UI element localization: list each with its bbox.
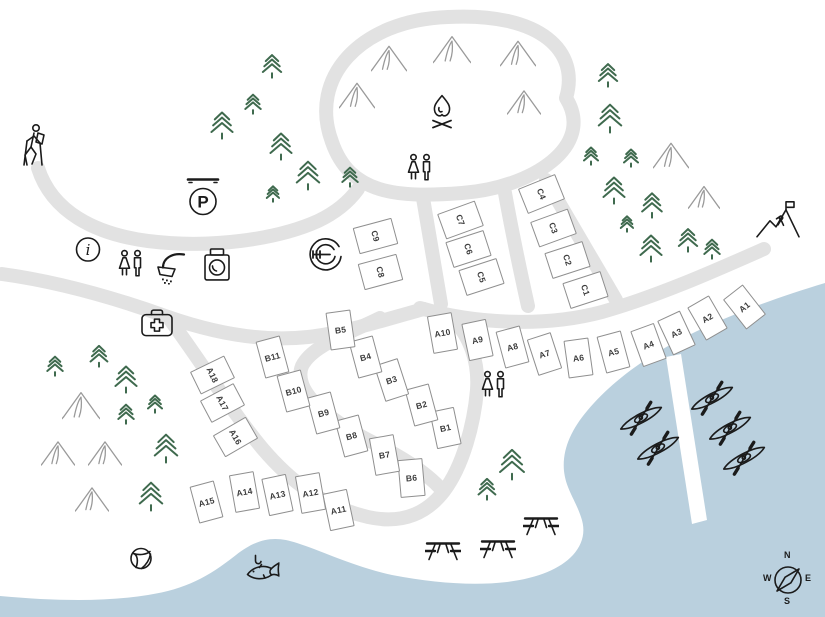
tree-icon bbox=[597, 102, 623, 139]
tree-icon bbox=[341, 166, 359, 193]
site-label: A13 bbox=[268, 488, 286, 501]
climbing-icon[interactable] bbox=[755, 199, 801, 245]
tent-icon bbox=[500, 38, 536, 71]
site-label: B2 bbox=[414, 399, 427, 412]
site-label: C9 bbox=[369, 229, 382, 242]
tent-icon bbox=[371, 43, 407, 76]
site-label: C3 bbox=[546, 221, 559, 235]
restrooms-icon[interactable] bbox=[116, 249, 146, 286]
site-label: A16 bbox=[227, 427, 244, 446]
tree-icon bbox=[678, 227, 699, 258]
site-label: C7 bbox=[453, 213, 466, 227]
compass-west: W bbox=[763, 573, 772, 583]
site-label: A9 bbox=[470, 334, 483, 346]
hiking-trailhead-icon[interactable] bbox=[17, 122, 53, 172]
site-label: B1 bbox=[438, 422, 451, 434]
site-label: B10 bbox=[284, 384, 302, 398]
svg-text:i: i bbox=[86, 241, 91, 259]
compass-east: E bbox=[805, 573, 811, 583]
compass-south: S bbox=[784, 596, 790, 606]
site-label: C2 bbox=[561, 253, 574, 267]
tree-icon bbox=[498, 447, 525, 486]
site-label: A4 bbox=[641, 338, 655, 351]
site-label: A1 bbox=[736, 300, 751, 315]
tree-icon bbox=[114, 364, 138, 399]
tree-icon bbox=[244, 93, 262, 120]
site-label: B3 bbox=[384, 374, 398, 387]
site-a6[interactable]: A6 bbox=[563, 337, 593, 378]
site-label: B8 bbox=[344, 430, 357, 443]
tree-icon bbox=[583, 146, 599, 171]
tree-icon bbox=[703, 238, 721, 265]
site-label: A8 bbox=[505, 341, 518, 354]
tree-icon bbox=[641, 191, 663, 224]
tree-icon bbox=[602, 175, 626, 210]
ball-play-icon[interactable] bbox=[130, 547, 153, 575]
site-label: A17 bbox=[214, 393, 230, 412]
tent-icon bbox=[507, 88, 541, 120]
tree-icon bbox=[269, 131, 293, 166]
tree-icon bbox=[46, 355, 64, 382]
site-label: C8 bbox=[374, 265, 387, 278]
tree-icon bbox=[117, 403, 135, 430]
site-label: A2 bbox=[700, 311, 715, 325]
information-icon[interactable]: i bbox=[75, 236, 102, 268]
site-label: A3 bbox=[669, 326, 683, 340]
fishing-icon[interactable] bbox=[243, 553, 280, 592]
campfire-icon[interactable] bbox=[426, 94, 458, 135]
food-icon[interactable] bbox=[305, 236, 343, 279]
first-aid-icon[interactable] bbox=[140, 308, 175, 343]
restrooms-icon[interactable] bbox=[405, 153, 435, 190]
site-b6[interactable]: B6 bbox=[397, 458, 425, 498]
site-label: A14 bbox=[235, 486, 253, 499]
site-label: A6 bbox=[572, 352, 585, 363]
site-label: B7 bbox=[378, 449, 391, 461]
campground-map: A1A2A3A4A5A6A7A8A9A10A11A12A13A14A15A16A… bbox=[0, 0, 825, 617]
svg-text:P: P bbox=[197, 193, 208, 212]
tree-icon bbox=[262, 53, 283, 84]
site-label: A15 bbox=[197, 495, 215, 509]
road-c2 bbox=[505, 193, 528, 306]
laundry-icon[interactable] bbox=[202, 247, 233, 287]
site-label: B6 bbox=[405, 473, 417, 484]
compass: N E S W bbox=[762, 552, 814, 608]
parking-icon[interactable]: P bbox=[183, 176, 223, 223]
tent-icon bbox=[688, 184, 720, 214]
site-label: A7 bbox=[537, 348, 551, 361]
site-label: C4 bbox=[534, 187, 547, 201]
tree-icon bbox=[598, 62, 619, 93]
site-label: C5 bbox=[475, 270, 488, 284]
tree-icon bbox=[138, 480, 164, 517]
site-label: A18 bbox=[204, 366, 220, 385]
site-label: A11 bbox=[329, 503, 346, 516]
tree-icon bbox=[620, 215, 634, 238]
tree-icon bbox=[639, 233, 663, 268]
picnic-table-icon bbox=[425, 540, 461, 567]
tent-icon bbox=[41, 439, 75, 471]
tent-icon bbox=[339, 80, 375, 113]
site-label: B9 bbox=[316, 407, 329, 420]
tree-icon bbox=[266, 185, 280, 208]
tree-icon bbox=[147, 394, 163, 419]
tree-icon bbox=[623, 148, 639, 173]
restrooms-icon[interactable] bbox=[479, 370, 509, 407]
tent-icon bbox=[75, 485, 109, 517]
compass-north: N bbox=[784, 550, 791, 560]
tent-icon bbox=[88, 439, 122, 471]
compass-needle bbox=[777, 569, 799, 591]
site-b5[interactable]: B5 bbox=[325, 309, 355, 350]
tent-icon bbox=[62, 390, 100, 425]
tent-icon bbox=[653, 140, 689, 173]
tree-icon bbox=[153, 432, 179, 469]
site-label: B11 bbox=[263, 350, 281, 364]
picnic-table-icon bbox=[480, 538, 516, 565]
site-label: B4 bbox=[358, 351, 371, 364]
picnic-table-icon bbox=[523, 515, 559, 542]
tree-icon bbox=[210, 110, 234, 145]
tree-icon bbox=[295, 159, 321, 196]
site-label: A12 bbox=[301, 487, 319, 500]
tent-icon bbox=[433, 34, 471, 69]
site-label: A5 bbox=[606, 346, 619, 359]
site-label: B5 bbox=[334, 324, 347, 335]
tree-icon bbox=[89, 344, 108, 373]
site-label: C1 bbox=[579, 283, 592, 297]
site-label: A10 bbox=[433, 327, 451, 340]
tree-icon bbox=[477, 477, 496, 506]
showers-icon[interactable] bbox=[155, 251, 189, 290]
site-label: C6 bbox=[462, 242, 475, 256]
